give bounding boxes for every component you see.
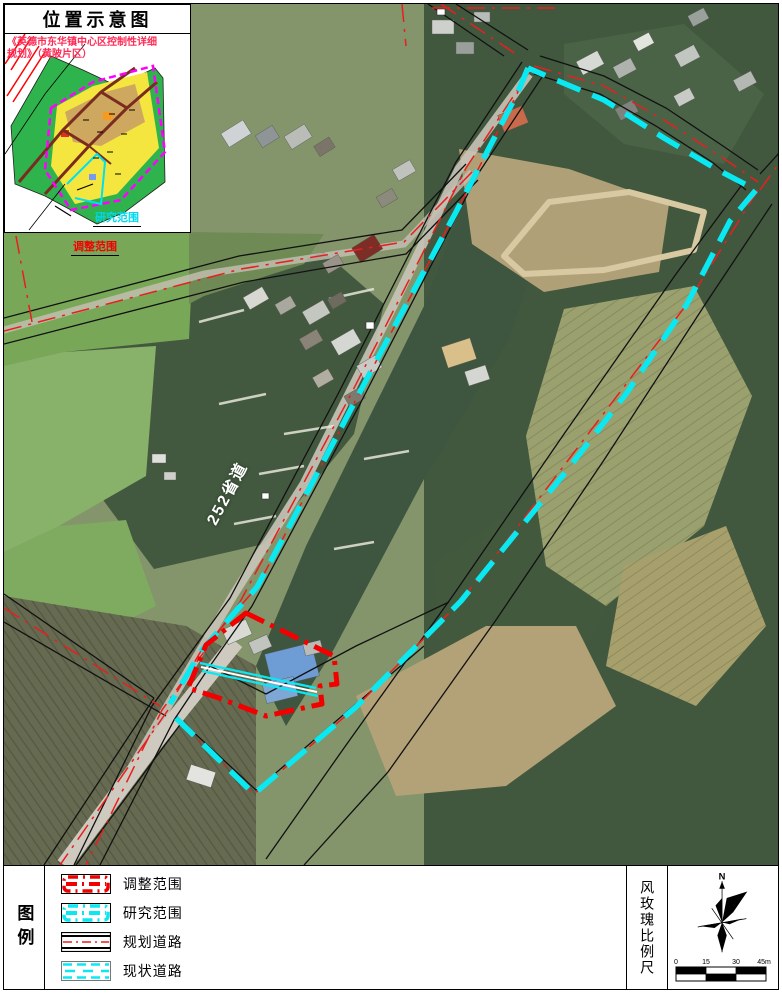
inset-zoning-graphic [5, 34, 189, 232]
planning-map-page: 252省道 位置示意图 [0, 0, 782, 994]
legend-label-adjust: 调整范围 [123, 874, 183, 894]
existing-road-swatch [61, 961, 111, 981]
inset-map: 位置示意图 [4, 4, 191, 233]
legend-title: 图例 [11, 904, 36, 952]
compass-cell: N 0 15 30 45m [667, 866, 778, 989]
planned-road-swatch [61, 932, 111, 952]
inset-title: 位置示意图 [5, 5, 190, 34]
map-frame: 252省道 位置示意图 [3, 3, 779, 990]
plan-document-note: 《英德市东华镇中心区控制性详细规划》（黄陂片区） [7, 37, 159, 61]
map-area: 252省道 位置示意图 [4, 4, 778, 865]
legend-label-planned-road: 规划道路 [123, 932, 183, 952]
study-boundary-swatch [61, 903, 111, 923]
scale-bar: 0 15 30 45m [671, 956, 775, 988]
scale-tick-15: 15 [702, 959, 710, 966]
inset-adjust-label: 调整范围 [71, 238, 119, 256]
legend-row-planned-road: 规划道路 [61, 932, 626, 953]
inset-study-label: 研究范围 [93, 209, 141, 227]
legend-row-adjust: 调整范围 [61, 874, 626, 895]
north-label: N [719, 871, 726, 881]
legend-row-study: 研究范围 [61, 903, 626, 924]
legend-label-existing-road: 现状道路 [123, 961, 183, 981]
scale-tick-0: 0 [674, 959, 678, 966]
scale-tick-30: 30 [732, 959, 740, 966]
compass-title: 风玫瑰比例尺 [637, 880, 657, 976]
legend-title-cell: 图例 [4, 866, 45, 989]
legend-items: 调整范围 研究范围 [45, 866, 626, 989]
legend-row-existing-road: 现状道路 [61, 961, 626, 982]
wind-rose: N [668, 870, 778, 956]
bottom-bar: 图例 调整范围 研究范围 [4, 865, 778, 989]
inset-map-body: 《英德市东华镇中心区控制性详细规划》（黄陂片区） 研究范围 调整范围 [5, 34, 190, 232]
scale-tick-45: 45m [757, 959, 771, 966]
legend-label-study: 研究范围 [123, 903, 183, 923]
compass-title-cell: 风玫瑰比例尺 [626, 866, 667, 989]
adjust-boundary-swatch [61, 874, 111, 894]
